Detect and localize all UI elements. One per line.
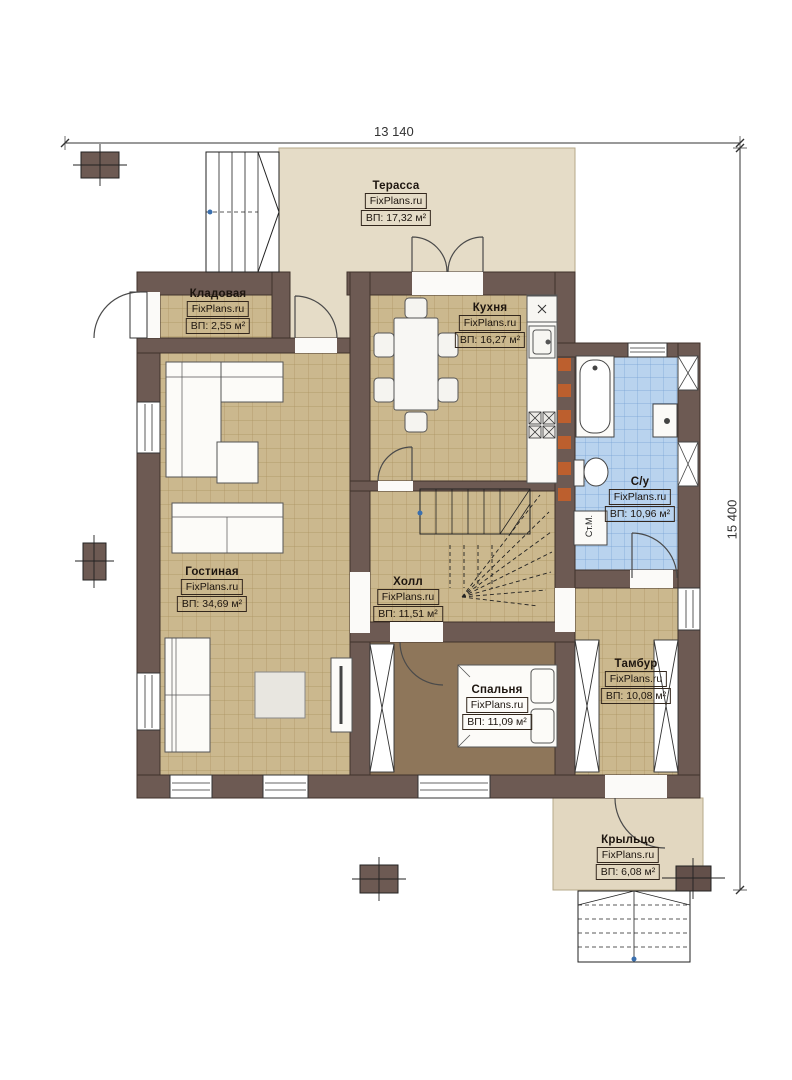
brand-box: FixPlans.ru — [187, 301, 250, 317]
room-label-vestibule: Тамбур FixPlans.ru ВП: 10,08 м² — [601, 658, 671, 704]
room-label-kitchen: Кухня FixPlans.ru ВП: 16,27 м² — [455, 302, 525, 348]
floor-plan-drawing — [0, 0, 792, 1080]
area-box: ВП: 6,08 м² — [596, 864, 660, 880]
area-box: ВП: 11,51 м² — [373, 606, 443, 622]
brand-box: FixPlans.ru — [181, 579, 244, 595]
room-label-hall: Холл FixPlans.ru ВП: 11,51 м² — [373, 576, 443, 622]
area-box: ВП: 11,09 м² — [462, 714, 532, 730]
room-name: Крыльцо — [601, 834, 655, 846]
terrace-steps — [206, 152, 279, 272]
area-box: ВП: 10,08 м² — [601, 688, 671, 704]
room-name: Тамбур — [615, 658, 658, 670]
room-name: Холл — [393, 576, 423, 588]
room-name: Кухня — [473, 302, 508, 314]
washing-machine-label: Ст.М. — [584, 515, 594, 537]
dimension-height-label: 15 400 — [724, 500, 739, 540]
brand-box: FixPlans.ru — [459, 315, 522, 331]
room-name: С/у — [631, 476, 650, 488]
brand-box: FixPlans.ru — [377, 589, 440, 605]
floor-plan-page: 13 140 15 400 Терасса FixPlans.ru ВП: 17… — [0, 0, 792, 1080]
area-box: ВП: 34,69 м² — [177, 596, 247, 612]
room-name: Спальня — [471, 684, 522, 696]
room-label-bathroom: С/у FixPlans.ru ВП: 10,96 м² — [605, 476, 675, 522]
room-label-bedroom: Спальня FixPlans.ru ВП: 11,09 м² — [462, 684, 532, 730]
area-box: ВП: 17,32 м² — [361, 210, 431, 226]
room-label-living: Гостиная FixPlans.ru ВП: 34,69 м² — [177, 566, 247, 612]
room-name: Кладовая — [190, 288, 247, 300]
brand-box: FixPlans.ru — [597, 847, 660, 863]
brand-box: FixPlans.ru — [605, 671, 668, 687]
area-box: ВП: 16,27 м² — [455, 332, 525, 348]
room-label-porch: Крыльцо FixPlans.ru ВП: 6,08 м² — [596, 834, 660, 880]
area-box: ВП: 10,96 м² — [605, 506, 675, 522]
area-box: ВП: 2,55 м² — [186, 318, 250, 334]
room-name: Терасса — [372, 180, 419, 192]
room-label-storage: Кладовая FixPlans.ru ВП: 2,55 м² — [186, 288, 250, 334]
brand-box: FixPlans.ru — [609, 489, 672, 505]
brand-box: FixPlans.ru — [466, 697, 529, 713]
room-label-terrace: Терасса FixPlans.ru ВП: 17,32 м² — [361, 180, 431, 226]
porch-steps — [578, 891, 690, 962]
brand-box: FixPlans.ru — [365, 193, 428, 209]
room-name: Гостиная — [185, 566, 239, 578]
dimension-width-label: 13 140 — [374, 124, 414, 139]
